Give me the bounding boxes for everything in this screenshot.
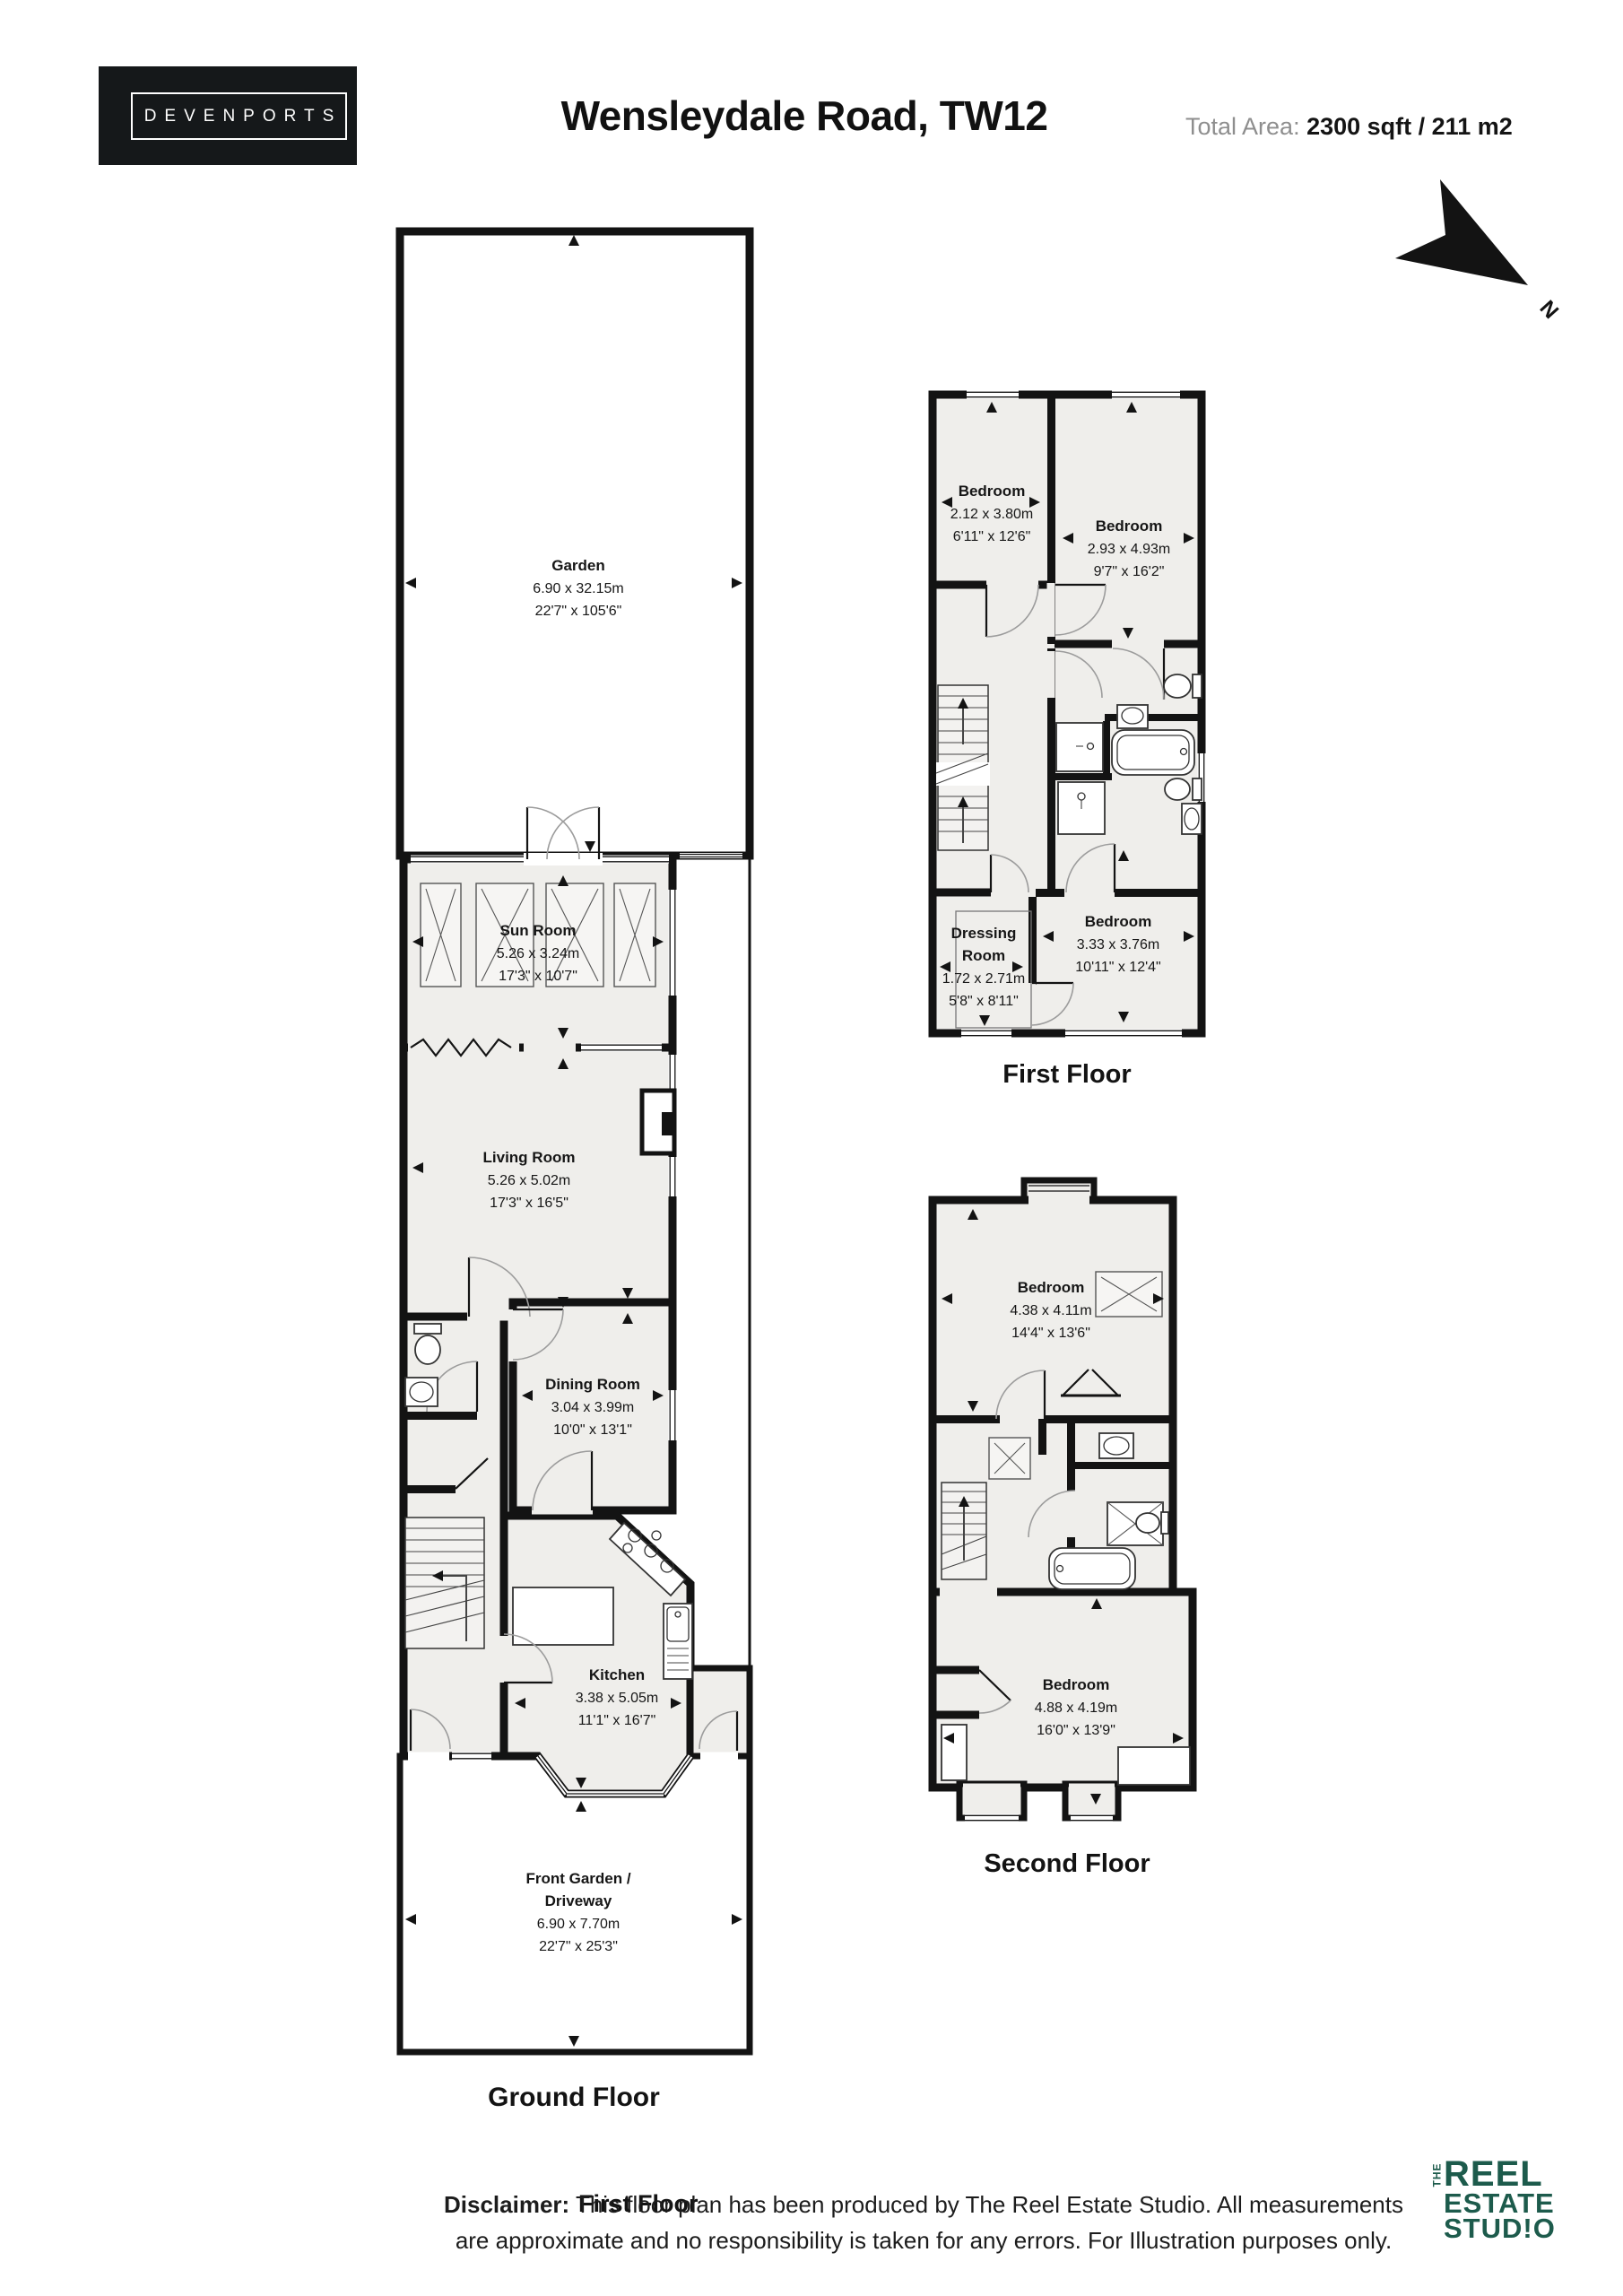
- dressing-room-imperial: 5'8" x 8'11": [949, 994, 1019, 1009]
- studio-logo-the: THE: [1432, 2175, 1442, 2187]
- agency-logo-frame: DEVENPORTS: [131, 92, 347, 140]
- sun-room-metric: 5.26 x 3.24m: [497, 946, 580, 961]
- compass-north-label: N: [1535, 296, 1564, 324]
- garden: Garden 6.90 x 32.15m 22'7" x 105'6": [400, 231, 750, 856]
- bedroom-label: Bedroom: [1043, 1676, 1110, 1693]
- living-room-imperial: 17'3" x 16'5": [490, 1196, 568, 1211]
- bedroom-label: Bedroom: [1096, 517, 1163, 535]
- agency-logo: DEVENPORTS: [99, 66, 357, 165]
- front-garden-label1: Front Garden /: [525, 1870, 630, 1887]
- door-opening: [408, 1752, 449, 1761]
- toilet-icon: [414, 1324, 441, 1334]
- bedroom-imperial: 14'4" x 13'6": [1011, 1326, 1090, 1341]
- door-opening: [532, 1507, 593, 1515]
- shower-icon: [1056, 723, 1103, 771]
- studio-logo-reel: REEL: [1444, 2158, 1543, 2191]
- living-room-metric: 5.26 x 5.02m: [488, 1173, 571, 1188]
- sun-room-imperial: 17'3" x 10'7": [499, 969, 577, 984]
- page-title: Wensleydale Road, TW12: [473, 91, 1136, 140]
- second-floor-caption: Second Floor: [928, 1849, 1206, 1879]
- toilet-icon: [1165, 778, 1190, 800]
- first-floor-caption: First Floor: [933, 1060, 1202, 1090]
- toilet-icon: [1161, 1512, 1168, 1534]
- compass: N: [1372, 148, 1623, 327]
- bedroom-imperial: 9'7" x 16'2": [1094, 564, 1165, 579]
- garden-label: Garden: [551, 557, 605, 574]
- door-opening: [524, 853, 603, 865]
- front-garden-label2: Driveway: [545, 1892, 612, 1909]
- dining-room-imperial: 10'0" x 13'1": [553, 1422, 632, 1438]
- ground-floor-plan: Garden 6.90 x 32.15m 22'7" x 105'6" Fron…: [393, 222, 759, 2063]
- second-floor-plan: Bedroom 4.38 x 4.11m 14'4" x 13'6" Bedro…: [922, 1175, 1214, 1830]
- bedroom-imperial: 10'11" x 12'4": [1075, 960, 1160, 975]
- door-opening: [509, 1309, 517, 1361]
- front-garden-metric: 6.90 x 7.70m: [537, 1917, 621, 1932]
- bedroom-label: Bedroom: [1085, 913, 1152, 930]
- first-floor-plan: Bedroom 2.12 x 3.80m 6'11" x 12'6" Bedro…: [922, 384, 1214, 1044]
- total-area-label: Total Area:: [1185, 113, 1300, 140]
- dining-room-label: Dining Room: [545, 1376, 640, 1393]
- door-opening: [467, 1313, 534, 1321]
- staircase: [405, 1518, 484, 1648]
- front-garden: Front Garden / Driveway 6.90 x 7.70m 22'…: [400, 1756, 750, 2052]
- bedroom-label: Bedroom: [959, 483, 1026, 500]
- garden-imperial: 22'7" x 105'6": [535, 604, 622, 619]
- bedroom-metric: 3.33 x 3.76m: [1077, 937, 1160, 952]
- bathtub-icon: [1112, 730, 1194, 775]
- kitchen-metric: 3.38 x 5.05m: [576, 1691, 659, 1706]
- garden-metric: 6.90 x 32.15m: [533, 581, 623, 596]
- front-garden-imperial: 22'7" x 25'3": [539, 1939, 618, 1954]
- disclaimer-lead: Disclaimer:: [444, 2191, 569, 2218]
- toilet-icon: [415, 1335, 440, 1364]
- bedroom-metric: 4.38 x 4.11m: [1010, 1303, 1091, 1318]
- disclaimer: Disclaimer: This floor plan has been pro…: [439, 2187, 1408, 2259]
- toilet-icon: [1193, 778, 1202, 800]
- opening: [524, 1043, 576, 1052]
- total-area: Total Area: 2300 sqft / 211 m2: [1185, 113, 1513, 141]
- staircase: [942, 1483, 986, 1579]
- dressing-room-label2: Room: [962, 947, 1005, 964]
- bedroom-label: Bedroom: [1018, 1279, 1085, 1296]
- compass-arrow-icon: [1395, 179, 1528, 285]
- ground-floor-caption: Ground Floor: [395, 2083, 753, 2113]
- living-room-label: Living Room: [483, 1149, 576, 1166]
- bedroom-imperial: 16'0" x 13'9": [1037, 1723, 1115, 1738]
- bedroom-imperial: 6'11" x 12'6": [953, 529, 1031, 544]
- island-counter-icon: [513, 1587, 613, 1645]
- disclaimer-body: This floor plan has been produced by The…: [456, 2191, 1403, 2254]
- total-area-value: 2300 sqft / 211 m2: [1306, 113, 1513, 140]
- dressing-room-metric: 1.72 x 2.71m: [942, 971, 1026, 987]
- kitchen-imperial: 11'1" x 16'7": [578, 1713, 656, 1728]
- studio-logo: THE REEL ESTATE STUD!O: [1431, 2158, 1584, 2242]
- staircase: [936, 685, 990, 850]
- studio-logo-studio: STUD!O: [1444, 2216, 1584, 2242]
- bedroom-metric: 2.93 x 4.93m: [1088, 542, 1171, 557]
- kitchen-label: Kitchen: [589, 1666, 645, 1683]
- door-opening: [700, 1752, 738, 1761]
- bedroom-metric: 2.12 x 3.80m: [950, 507, 1034, 522]
- eaves-storage: [1118, 1747, 1190, 1785]
- door-opening: [500, 1636, 508, 1683]
- toilet-icon: [1136, 1513, 1159, 1533]
- agency-logo-text: DEVENPORTS: [136, 107, 343, 126]
- bedroom-metric: 4.88 x 4.19m: [1035, 1700, 1118, 1716]
- floorplan-page: DEVENPORTS Wensleydale Road, TW12 Total …: [0, 0, 1623, 2296]
- toilet-icon: [1193, 674, 1202, 698]
- dining-room-metric: 3.04 x 3.99m: [551, 1400, 635, 1415]
- toilet-icon: [1164, 674, 1191, 698]
- dressing-room-label1: Dressing: [951, 925, 1017, 942]
- sun-room-label: Sun Room: [500, 922, 577, 939]
